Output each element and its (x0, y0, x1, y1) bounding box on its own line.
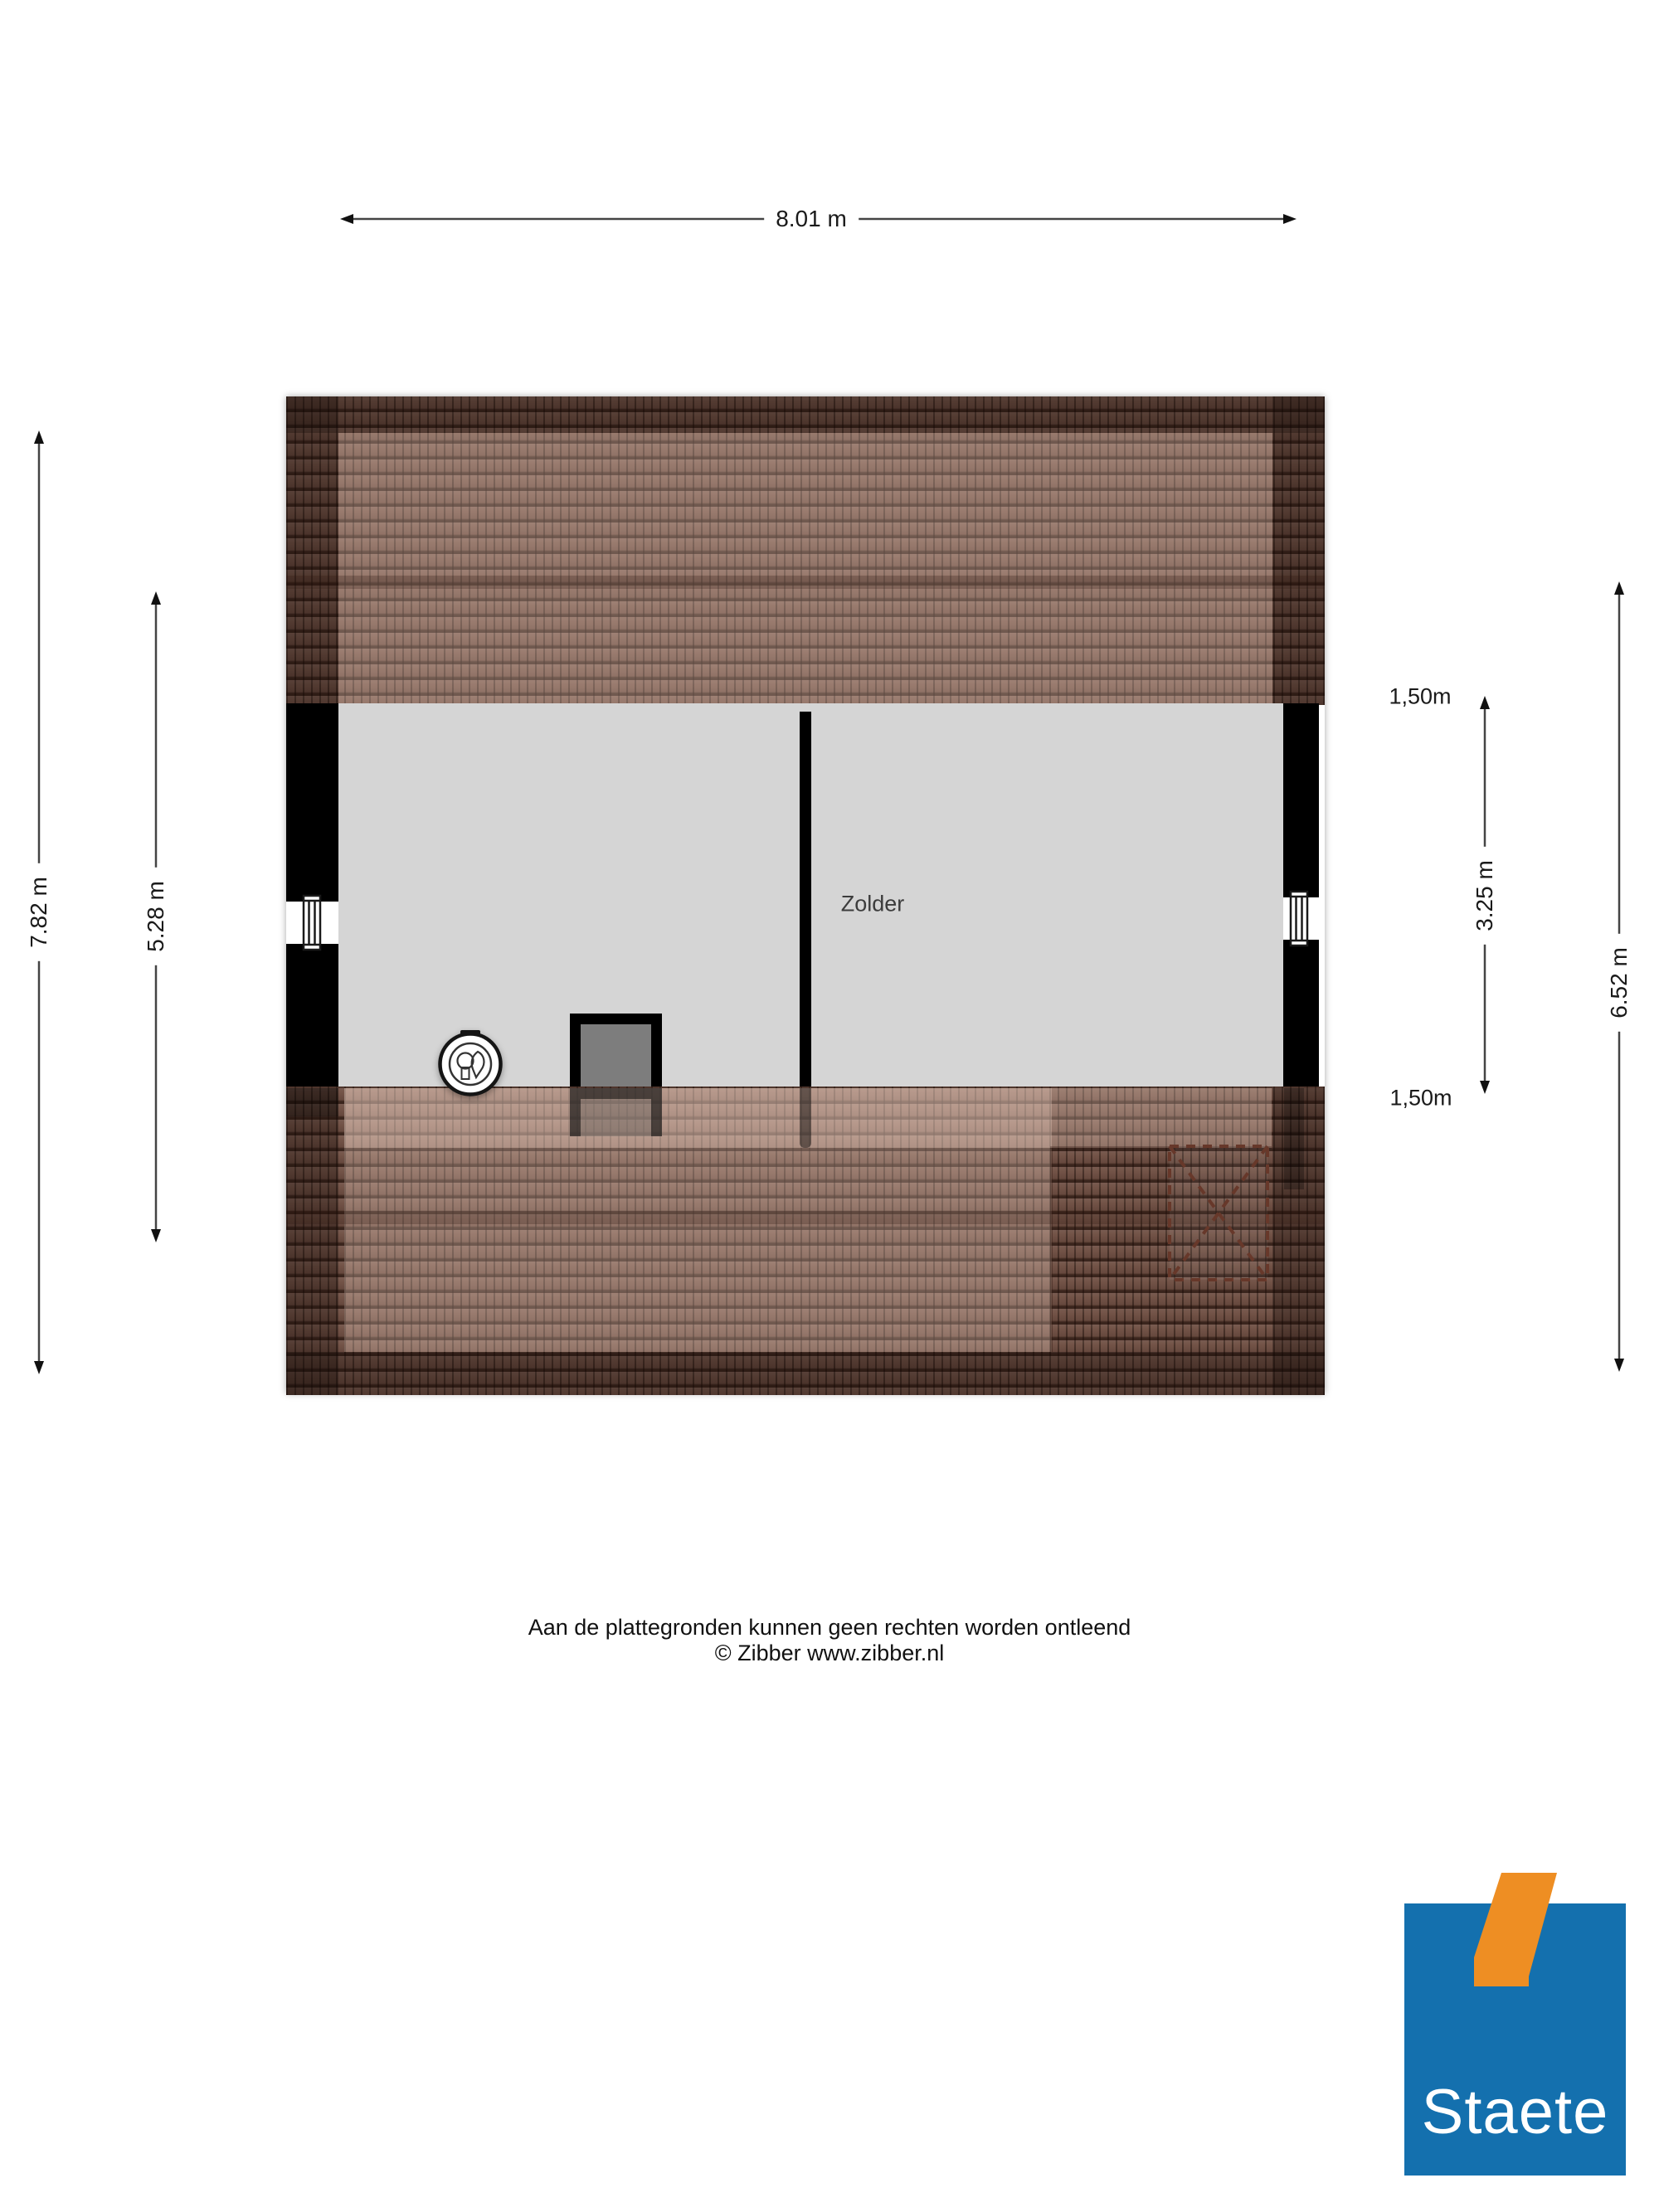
arrowhead-right-icon (1283, 214, 1297, 224)
logo-orange-slash-icon (1462, 1870, 1562, 1991)
arrowhead-down-icon (151, 1229, 161, 1242)
arrowhead-up-icon (34, 430, 44, 444)
arrowhead-up-icon (1480, 696, 1490, 709)
footer-credit: © Zibber www.zibber.nl (0, 1641, 1659, 1666)
logo-text: Staete (1404, 2081, 1626, 2144)
arrowhead-up-icon (151, 591, 161, 605)
plan-symbols (286, 396, 1325, 1393)
arrowhead-down-icon (1614, 1359, 1624, 1372)
arrowhead-up-icon (1614, 581, 1624, 595)
skylight-icon (1170, 1146, 1267, 1280)
arrowhead-left-icon (340, 214, 353, 224)
dimension-label-top-width: 8.01 m (764, 206, 859, 232)
floorplan-page: 8.01 m 7.82 m 5.28 m 1,50m 3.25 m 1,50m … (0, 0, 1659, 2212)
window-icon (1291, 892, 1307, 946)
mv-unit-icon (440, 1030, 501, 1095)
dimension-label-right-outer: 6.52 m (1606, 934, 1632, 1032)
offset-label-top: 1,50m (1389, 684, 1451, 710)
footer-disclaimer: Aan de plattegronden kunnen geen rechten… (0, 1615, 1659, 1641)
offset-label-bottom: 1,50m (1389, 1086, 1452, 1111)
footer: Aan de plattegronden kunnen geen rechten… (0, 1615, 1659, 1666)
arrowhead-down-icon (1480, 1081, 1490, 1094)
staete-logo: Staete (1404, 1870, 1626, 2176)
dimension-label-right-inner: 3.25 m (1472, 847, 1498, 945)
arrowhead-down-icon (34, 1361, 44, 1374)
dimension-label-left-outer: 7.82 m (26, 863, 52, 961)
floorplan: Zolder (286, 396, 1325, 1393)
dimension-label-left-inner: 5.28 m (143, 868, 169, 965)
window-icon (304, 896, 320, 950)
